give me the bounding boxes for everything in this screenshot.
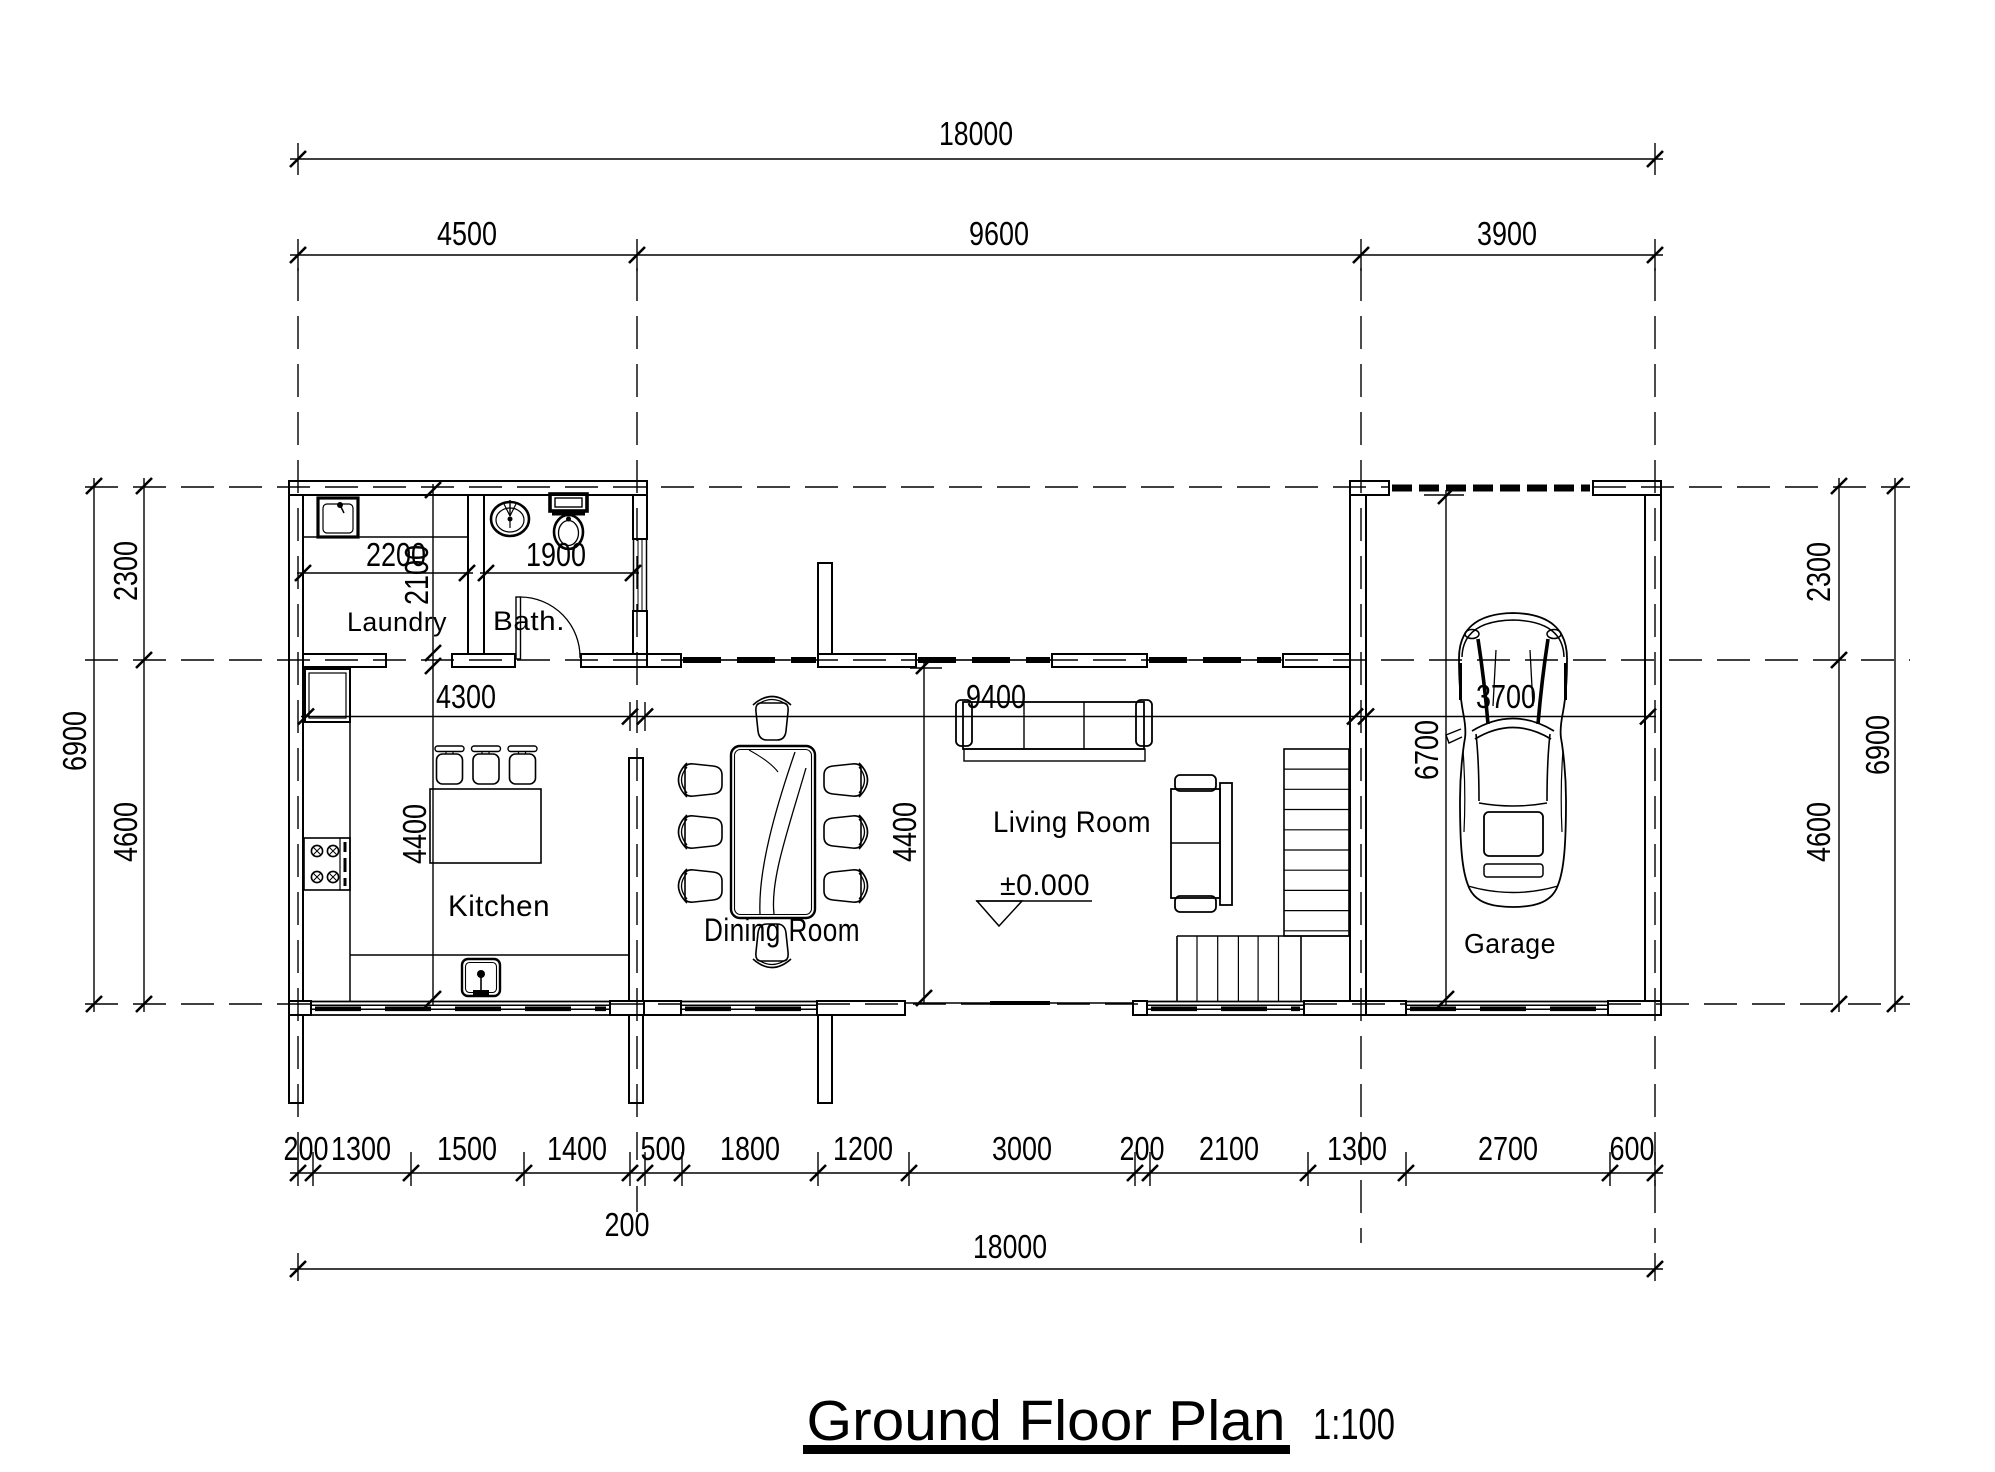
svg-text:4600: 4600 — [1800, 802, 1837, 862]
svg-text:200: 200 — [284, 1130, 329, 1167]
svg-text:18000: 18000 — [973, 1228, 1047, 1265]
svg-text:2300: 2300 — [107, 541, 144, 601]
svg-text:500: 500 — [641, 1130, 686, 1167]
svg-text:1800: 1800 — [720, 1130, 780, 1167]
svg-text:600: 600 — [1610, 1130, 1655, 1167]
svg-text:3900: 3900 — [1477, 215, 1537, 252]
svg-text:1500: 1500 — [437, 1130, 497, 1167]
svg-text:9600: 9600 — [969, 215, 1029, 252]
svg-text:200: 200 — [605, 1206, 650, 1243]
svg-text:1400: 1400 — [547, 1130, 607, 1167]
svg-text:6700: 6700 — [1408, 720, 1445, 780]
svg-text:2700: 2700 — [1478, 1130, 1538, 1167]
svg-text:Ground Floor Plan: Ground Floor Plan — [807, 1389, 1286, 1453]
svg-text:6900: 6900 — [56, 711, 93, 771]
svg-text:4400: 4400 — [396, 804, 433, 864]
svg-text:1900: 1900 — [526, 536, 586, 573]
svg-text:Laundry: Laundry — [347, 607, 447, 637]
svg-text:3700: 3700 — [1476, 678, 1536, 715]
svg-text:±0.000: ±0.000 — [1000, 869, 1090, 902]
svg-text:2100: 2100 — [1199, 1130, 1259, 1167]
svg-text:1300: 1300 — [1327, 1130, 1387, 1167]
svg-text:Kitchen: Kitchen — [448, 890, 550, 923]
svg-text:3000: 3000 — [992, 1130, 1052, 1167]
svg-text:4300: 4300 — [436, 678, 496, 715]
svg-text:6900: 6900 — [1859, 715, 1896, 775]
svg-text:4400: 4400 — [886, 802, 923, 862]
svg-text:Dining Room: Dining Room — [704, 912, 860, 948]
svg-text:Garage: Garage — [1464, 928, 1556, 959]
svg-text:Bath.: Bath. — [493, 606, 565, 636]
svg-text:18000: 18000 — [939, 115, 1013, 152]
svg-text:4500: 4500 — [437, 215, 497, 252]
svg-text:2300: 2300 — [1800, 542, 1837, 602]
svg-text:9400: 9400 — [966, 678, 1026, 715]
svg-text:1200: 1200 — [833, 1130, 893, 1167]
svg-text:Living Room: Living Room — [993, 806, 1151, 839]
svg-text:2100: 2100 — [398, 545, 435, 605]
svg-text:200: 200 — [1120, 1130, 1165, 1167]
svg-text:1300: 1300 — [331, 1130, 391, 1167]
svg-text:1:100: 1:100 — [1313, 1400, 1395, 1449]
svg-text:4600: 4600 — [107, 802, 144, 862]
